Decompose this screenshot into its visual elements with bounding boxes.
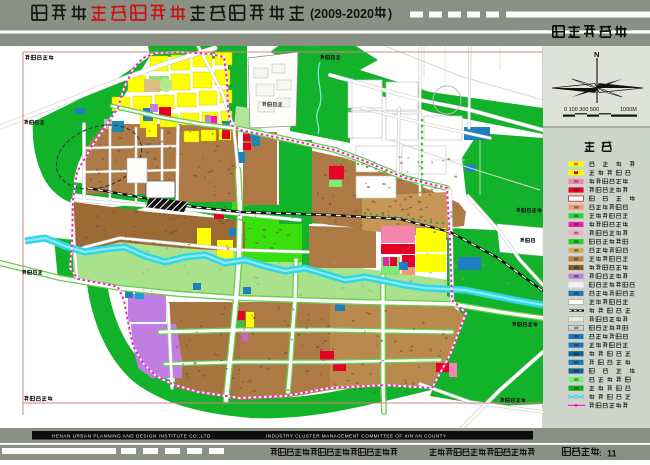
svg-text:): ) <box>388 7 392 21</box>
svg-text:0 100 300 500: 0 100 300 500 <box>564 107 599 113</box>
svg-text:1000M: 1000M <box>620 107 637 113</box>
svg-text:HENAN URBAN PLANNING AND D: HENAN URBAN PLANNING AND DESIGN INSTITUT… <box>52 434 211 439</box>
svg-text::: : <box>599 449 602 458</box>
svg-text:(2009-2020: (2009-2020 <box>310 7 374 21</box>
svg-text:INDUSTRY CLUSTER MANAGEMENT CO: INDUSTRY CLUSTER MANAGEMENT COMMITTEE OF… <box>266 434 447 439</box>
svg-text:11: 11 <box>607 449 617 459</box>
svg-text:N: N <box>594 50 599 59</box>
